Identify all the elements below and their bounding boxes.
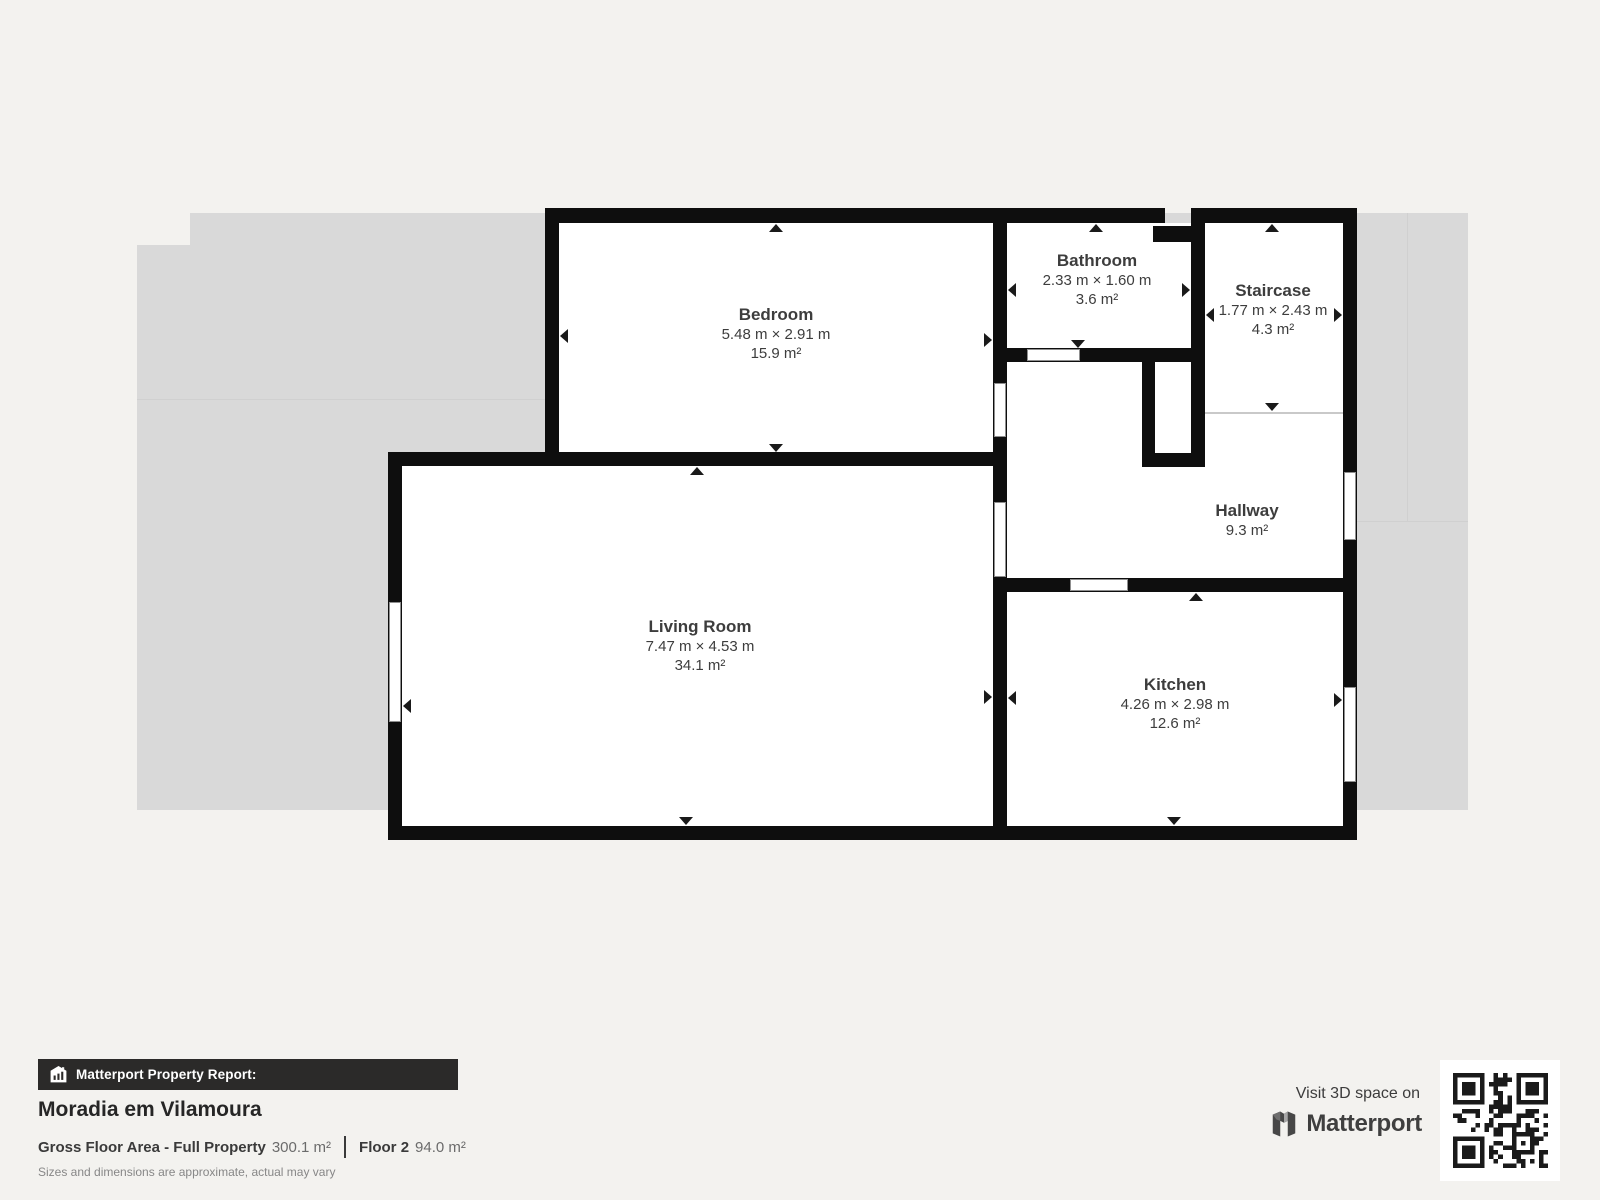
bathroom-door-opening: [1027, 349, 1080, 361]
wall-bedroom-living-divider: [388, 452, 1007, 466]
dimension-arrow-up-icon: [690, 467, 704, 475]
wall-top-bedroom-bathroom: [545, 208, 1165, 223]
room-dimensions: 5.48 m × 2.91 m: [722, 325, 831, 344]
room-dimensions: 7.47 m × 4.53 m: [646, 637, 755, 656]
room-name: Hallway: [1215, 501, 1278, 521]
bedroom-door-opening: [994, 383, 1006, 437]
room-name: Staircase: [1219, 281, 1328, 301]
matterport-logo: Matterport: [1269, 1109, 1422, 1139]
staircase-boundary-line: [1205, 412, 1343, 414]
report-header-bar: Matterport Property Report:: [38, 1059, 458, 1090]
room-dimensions: 1.77 m × 2.43 m: [1219, 301, 1328, 320]
qr-code: [1440, 1060, 1560, 1181]
room-name: Kitchen: [1121, 675, 1230, 695]
dimension-arrow-down-icon: [679, 817, 693, 825]
room-dimensions: 4.26 m × 2.98 m: [1121, 695, 1230, 714]
living-room-door-opening: [994, 502, 1006, 577]
room-label-staircase: Staircase 1.77 m × 2.43 m 4.3 m²: [1219, 281, 1328, 339]
dimension-arrow-left-icon: [560, 329, 568, 343]
wall-bedroom-left: [545, 208, 559, 466]
hallway-window: [1344, 472, 1356, 540]
dimension-arrow-right-icon: [984, 333, 992, 347]
stats-divider: [344, 1136, 346, 1158]
dimension-arrow-up-icon: [1089, 224, 1103, 232]
wall-staircase-left: [1191, 208, 1205, 467]
dimension-arrow-down-icon: [1167, 817, 1181, 825]
wall-bathroom-step: [1153, 226, 1191, 242]
dimension-arrow-right-icon: [984, 690, 992, 704]
dimension-arrow-up-icon: [1189, 593, 1203, 601]
room-name: Bedroom: [722, 305, 831, 325]
kitchen-door-opening: [1070, 579, 1128, 591]
dimension-arrow-right-icon: [1334, 308, 1342, 322]
room-dimensions: 2.33 m × 1.60 m: [1043, 271, 1152, 290]
report-bar-label: Matterport Property Report:: [76, 1067, 256, 1082]
dimension-arrow-left-icon: [403, 699, 411, 713]
dimension-arrow-right-icon: [1334, 693, 1342, 707]
room-name: Bathroom: [1043, 251, 1152, 271]
matterport-wordmark: Matterport: [1306, 1110, 1422, 1138]
room-label-kitchen: Kitchen 4.26 m × 2.98 m 12.6 m²: [1121, 675, 1230, 733]
room-label-living-room: Living Room 7.47 m × 4.53 m 34.1 m²: [646, 617, 755, 675]
visit-3d-block: Visit 3D space on Matterport: [1230, 1085, 1422, 1139]
room-area: 4.3 m²: [1219, 320, 1328, 339]
floor-area-value: 94.0 m²: [415, 1139, 466, 1156]
floor-area-stats: Gross Floor Area - Full Property 300.1 m…: [38, 1136, 466, 1158]
room-area: 12.6 m²: [1121, 714, 1230, 733]
wall-closet-left: [1142, 362, 1155, 467]
room-label-bathroom: Bathroom 2.33 m × 1.60 m 3.6 m²: [1043, 251, 1152, 309]
dimension-arrow-left-icon: [1206, 308, 1214, 322]
underlay-seam: [1357, 521, 1468, 522]
room-area: 34.1 m²: [646, 656, 755, 675]
property-report-page: Bedroom 5.48 m × 2.91 m 15.9 m² Bathroom…: [0, 0, 1600, 1200]
room-area: 15.9 m²: [722, 344, 831, 363]
floor-label: Floor 2: [359, 1139, 409, 1156]
dimension-arrow-down-icon: [1071, 340, 1085, 348]
underlay-seam: [1407, 213, 1408, 521]
room-area: 3.6 m²: [1043, 290, 1152, 309]
dimension-arrow-down-icon: [1265, 403, 1279, 411]
room-area: 9.3 m²: [1215, 521, 1278, 540]
room-name: Living Room: [646, 617, 755, 637]
room-label-hallway: Hallway 9.3 m²: [1215, 501, 1278, 540]
dimension-arrow-left-icon: [1008, 283, 1016, 297]
dimension-arrow-right-icon: [1182, 283, 1190, 297]
property-title: Moradia em Vilamoura: [38, 1098, 262, 1122]
dimension-arrow-down-icon: [769, 444, 783, 452]
gross-floor-area-label: Gross Floor Area - Full Property: [38, 1139, 266, 1156]
living-room-window: [389, 602, 401, 722]
adjacent-area-underlay: [190, 213, 545, 245]
wall-bottom: [388, 826, 1357, 840]
visit-3d-text: Visit 3D space on: [1296, 1085, 1420, 1103]
disclaimer-text: Sizes and dimensions are approximate, ac…: [38, 1165, 335, 1179]
underlay-seam: [137, 399, 545, 400]
dimension-arrow-left-icon: [1008, 691, 1016, 705]
matterport-logo-icon: [1269, 1109, 1299, 1139]
wall-top-staircase: [1191, 208, 1357, 223]
kitchen-window: [1344, 687, 1356, 782]
room-label-bedroom: Bedroom 5.48 m × 2.91 m 15.9 m²: [722, 305, 831, 363]
dimension-arrow-up-icon: [769, 224, 783, 232]
wall-kitchen-top: [993, 578, 1357, 592]
gross-floor-area-value: 300.1 m²: [272, 1139, 331, 1156]
house-report-icon: [50, 1066, 67, 1083]
dimension-arrow-up-icon: [1265, 224, 1279, 232]
